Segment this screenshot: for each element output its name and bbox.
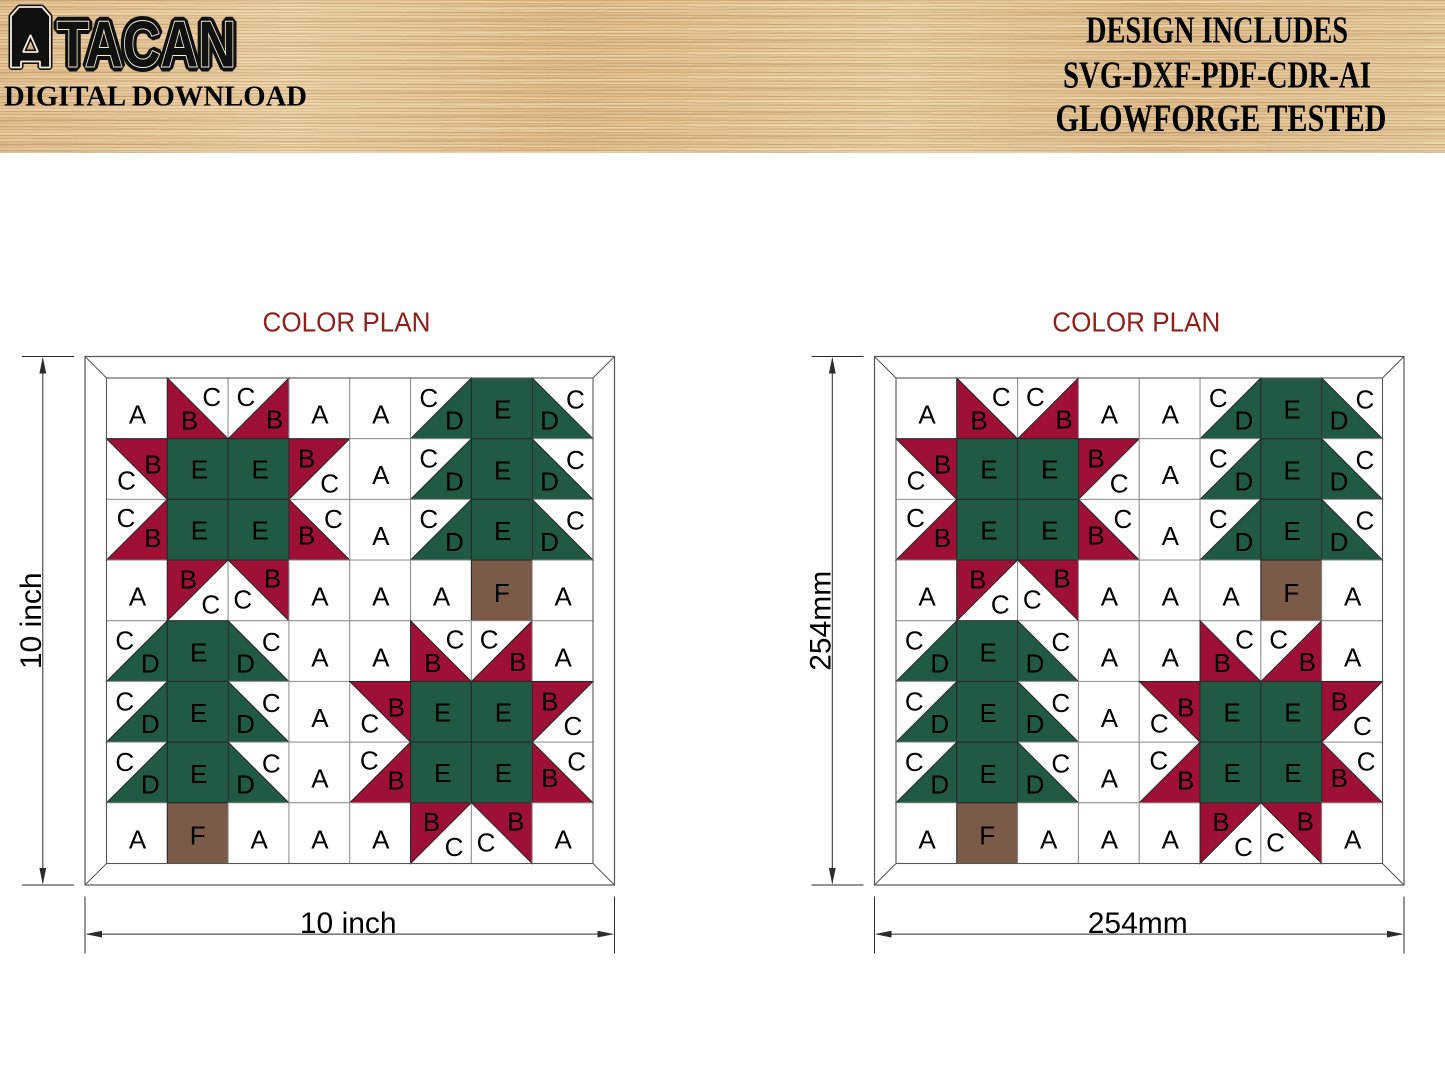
svg-text:E: E: [1284, 697, 1301, 727]
svg-text:B: B: [144, 523, 161, 553]
svg-text:A: A: [311, 642, 329, 672]
svg-text:B: B: [1212, 807, 1229, 837]
svg-text:C: C: [320, 468, 339, 498]
svg-text:E: E: [1284, 758, 1301, 788]
svg-text:A: A: [311, 703, 329, 733]
svg-text:D: D: [540, 466, 559, 496]
svg-text:B: B: [969, 564, 986, 594]
svg-text:E: E: [979, 637, 996, 667]
svg-text:B: B: [1055, 404, 1072, 434]
svg-text:B: B: [934, 523, 951, 553]
svg-text:E: E: [251, 515, 268, 545]
svg-text:B: B: [1053, 564, 1070, 594]
svg-text:C: C: [117, 503, 136, 533]
svg-text:E: E: [980, 515, 997, 545]
svg-text:D: D: [930, 709, 949, 739]
svg-text:C: C: [445, 832, 464, 862]
svg-text:A: A: [1162, 400, 1180, 430]
svg-text:D: D: [540, 406, 559, 436]
svg-text:B: B: [1087, 520, 1104, 550]
svg-text:A: A: [1344, 642, 1362, 672]
svg-text:C: C: [567, 747, 586, 777]
svg-text:A: A: [311, 764, 329, 794]
svg-text:D: D: [930, 770, 949, 800]
svg-text:A: A: [372, 824, 390, 854]
svg-text:C: C: [324, 504, 343, 534]
svg-text:D: D: [540, 527, 559, 557]
svg-text:F: F: [494, 578, 510, 608]
svg-text:E: E: [495, 697, 512, 727]
svg-text:A: A: [372, 400, 390, 430]
svg-text:E: E: [251, 455, 268, 485]
svg-text:C: C: [1234, 832, 1253, 862]
svg-text:D: D: [1234, 466, 1253, 496]
svg-text:B: B: [298, 520, 315, 550]
svg-text:COLOR PLAN: COLOR PLAN: [263, 307, 431, 338]
svg-text:C: C: [1149, 746, 1168, 776]
svg-text:E: E: [191, 455, 208, 485]
svg-text:C: C: [1269, 625, 1288, 655]
svg-text:C: C: [1051, 688, 1070, 718]
svg-text:B: B: [970, 405, 987, 435]
svg-text:B: B: [1087, 444, 1104, 474]
svg-text:C: C: [201, 589, 220, 619]
svg-text:D: D: [1330, 406, 1349, 436]
svg-text:E: E: [494, 455, 511, 485]
svg-text:DIGITAL DOWNLOAD: DIGITAL DOWNLOAD: [4, 80, 307, 112]
svg-text:C: C: [906, 503, 925, 533]
svg-text:B: B: [1299, 647, 1316, 677]
svg-text:A: A: [918, 582, 936, 612]
svg-text:C: C: [1023, 585, 1042, 615]
svg-text:A: A: [372, 582, 390, 612]
svg-text:C: C: [117, 466, 136, 496]
svg-text:A: A: [250, 824, 268, 854]
svg-text:10 inch: 10 inch: [15, 572, 48, 669]
svg-text:COLOR PLAN: COLOR PLAN: [1052, 307, 1220, 338]
svg-text:B: B: [507, 806, 524, 836]
svg-text:C: C: [419, 504, 438, 534]
svg-text:A: A: [1101, 824, 1119, 854]
svg-text:C: C: [360, 708, 379, 738]
svg-text:E: E: [980, 455, 997, 485]
svg-text:C: C: [1209, 383, 1228, 413]
svg-text:E: E: [191, 515, 208, 545]
svg-text:B: B: [423, 807, 440, 837]
svg-text:F: F: [979, 821, 995, 851]
svg-text:E: E: [1041, 515, 1058, 545]
svg-text:C: C: [262, 748, 281, 778]
svg-text:D: D: [1026, 770, 1045, 800]
svg-text:C: C: [991, 589, 1010, 619]
svg-text:E: E: [190, 698, 207, 728]
svg-text:C: C: [1110, 468, 1129, 498]
svg-text:D: D: [1234, 406, 1253, 436]
svg-text:A: A: [918, 824, 936, 854]
svg-text:A: A: [1101, 582, 1119, 612]
svg-text:F: F: [1283, 578, 1299, 608]
svg-text:E: E: [434, 697, 451, 727]
svg-text:D: D: [445, 466, 464, 496]
svg-text:C: C: [446, 625, 465, 655]
svg-text:D: D: [141, 709, 160, 739]
svg-text:A: A: [129, 400, 147, 430]
svg-text:C: C: [566, 506, 585, 536]
svg-text:C: C: [202, 382, 221, 412]
svg-text:E: E: [190, 637, 207, 667]
svg-text:C: C: [1266, 827, 1285, 857]
svg-text:A: A: [311, 400, 329, 430]
svg-text:E: E: [494, 516, 511, 546]
svg-text:C: C: [1113, 504, 1132, 534]
svg-text:A: A: [1162, 824, 1180, 854]
svg-text:D: D: [236, 648, 255, 678]
svg-text:D: D: [445, 527, 464, 557]
svg-text:A: A: [1344, 582, 1362, 612]
svg-text:E: E: [494, 395, 511, 425]
svg-text:B: B: [180, 564, 197, 594]
svg-text:E: E: [1284, 516, 1301, 546]
svg-text:B: B: [387, 766, 404, 796]
svg-text:SVG-DXF-PDF-CDR-AI: SVG-DXF-PDF-CDR-AI: [1063, 55, 1371, 97]
svg-text:A: A: [1101, 764, 1119, 794]
svg-text:D: D: [1330, 466, 1349, 496]
svg-text:A: A: [129, 582, 147, 612]
svg-text:C: C: [1051, 748, 1070, 778]
svg-text:C: C: [477, 827, 496, 857]
svg-text:GLOWFORGE TESTED: GLOWFORGE TESTED: [1056, 97, 1387, 140]
svg-text:C: C: [566, 445, 585, 475]
svg-text:C: C: [905, 747, 924, 777]
svg-text:A: A: [1344, 824, 1362, 854]
svg-text:C: C: [1026, 382, 1045, 412]
svg-text:B: B: [1331, 686, 1348, 716]
svg-text:A: A: [311, 582, 329, 612]
svg-text:C: C: [1357, 747, 1376, 777]
svg-text:D: D: [141, 770, 160, 800]
svg-text:B: B: [144, 450, 161, 480]
svg-text:254mm: 254mm: [1088, 907, 1188, 940]
svg-text:B: B: [298, 444, 315, 474]
svg-text:E: E: [1041, 455, 1058, 485]
svg-text:D: D: [1026, 648, 1045, 678]
svg-text:C: C: [1209, 444, 1228, 474]
svg-text:A: A: [1162, 460, 1180, 490]
svg-text:D: D: [236, 770, 255, 800]
svg-text:254mm: 254mm: [805, 571, 838, 671]
svg-text:C: C: [907, 466, 926, 496]
svg-text:B: B: [1214, 648, 1231, 678]
svg-text:C: C: [237, 382, 256, 412]
svg-text:B: B: [509, 647, 526, 677]
svg-text:C: C: [115, 747, 134, 777]
svg-text:A: A: [1101, 703, 1119, 733]
svg-text:D: D: [1330, 527, 1349, 557]
svg-text:D: D: [236, 709, 255, 739]
svg-text:C: C: [233, 585, 252, 615]
svg-text:C: C: [564, 711, 583, 741]
svg-text:C: C: [1051, 627, 1070, 657]
svg-text:B: B: [934, 450, 951, 480]
svg-text:C: C: [1209, 504, 1228, 534]
svg-text:C: C: [1235, 625, 1254, 655]
svg-text:D: D: [1026, 709, 1045, 739]
svg-text:A: A: [1162, 642, 1180, 672]
svg-text:E: E: [190, 759, 207, 789]
svg-text:C: C: [1353, 711, 1372, 741]
svg-text:A: A: [555, 642, 573, 672]
svg-text:B: B: [424, 648, 441, 678]
svg-text:C: C: [419, 444, 438, 474]
svg-text:C: C: [1355, 384, 1374, 414]
svg-text:A: A: [918, 400, 936, 430]
svg-text:DESIGN INCLUDES: DESIGN INCLUDES: [1086, 10, 1348, 52]
svg-text:B: B: [541, 763, 558, 793]
svg-text:C: C: [115, 626, 134, 656]
svg-text:10 inch: 10 inch: [300, 907, 397, 940]
svg-text:C: C: [1355, 506, 1374, 536]
svg-text:A: A: [372, 521, 390, 551]
svg-text:E: E: [1284, 395, 1301, 425]
svg-text:A: A: [372, 642, 390, 672]
svg-text:C: C: [419, 383, 438, 413]
svg-text:C: C: [262, 627, 281, 657]
svg-text:C: C: [1355, 445, 1374, 475]
svg-text:E: E: [1223, 697, 1240, 727]
svg-text:A: A: [555, 824, 573, 854]
svg-text:E: E: [495, 758, 512, 788]
svg-text:C: C: [262, 688, 281, 718]
svg-text:E: E: [1284, 455, 1301, 485]
svg-text:D: D: [445, 406, 464, 436]
svg-text:B: B: [541, 686, 558, 716]
svg-text:A: A: [555, 582, 573, 612]
svg-text:B: B: [388, 692, 405, 722]
svg-text:A: A: [372, 460, 390, 490]
svg-text:D: D: [930, 648, 949, 678]
svg-text:A: A: [433, 582, 451, 612]
svg-text:A: A: [129, 824, 147, 854]
svg-text:B: B: [1331, 763, 1348, 793]
svg-text:C: C: [905, 626, 924, 656]
svg-text:TACAN: TACAN: [57, 9, 236, 81]
svg-text:C: C: [992, 382, 1011, 412]
svg-text:B: B: [266, 404, 283, 434]
svg-text:B: B: [264, 564, 281, 594]
svg-text:A: A: [1101, 400, 1119, 430]
svg-text:A: A: [1101, 642, 1119, 672]
svg-text:B: B: [1177, 692, 1194, 722]
svg-text:A: A: [1162, 582, 1180, 612]
svg-text:A: A: [1040, 824, 1058, 854]
svg-text:C: C: [905, 686, 924, 716]
svg-text:C: C: [360, 746, 379, 776]
svg-text:E: E: [1223, 758, 1240, 788]
svg-text:A: A: [1162, 521, 1180, 551]
svg-text:F: F: [190, 821, 206, 851]
svg-text:C: C: [115, 686, 134, 716]
svg-text:E: E: [979, 759, 996, 789]
svg-text:D: D: [1234, 527, 1253, 557]
svg-text:A: A: [1222, 582, 1240, 612]
svg-text:E: E: [979, 698, 996, 728]
svg-text:D: D: [141, 648, 160, 678]
svg-text:C: C: [480, 625, 499, 655]
svg-text:B: B: [181, 405, 198, 435]
svg-text:A: A: [311, 824, 329, 854]
svg-text:C: C: [1150, 708, 1169, 738]
svg-text:C: C: [566, 384, 585, 414]
svg-text:B: B: [1297, 806, 1314, 836]
svg-text:E: E: [434, 758, 451, 788]
svg-text:B: B: [1177, 766, 1194, 796]
